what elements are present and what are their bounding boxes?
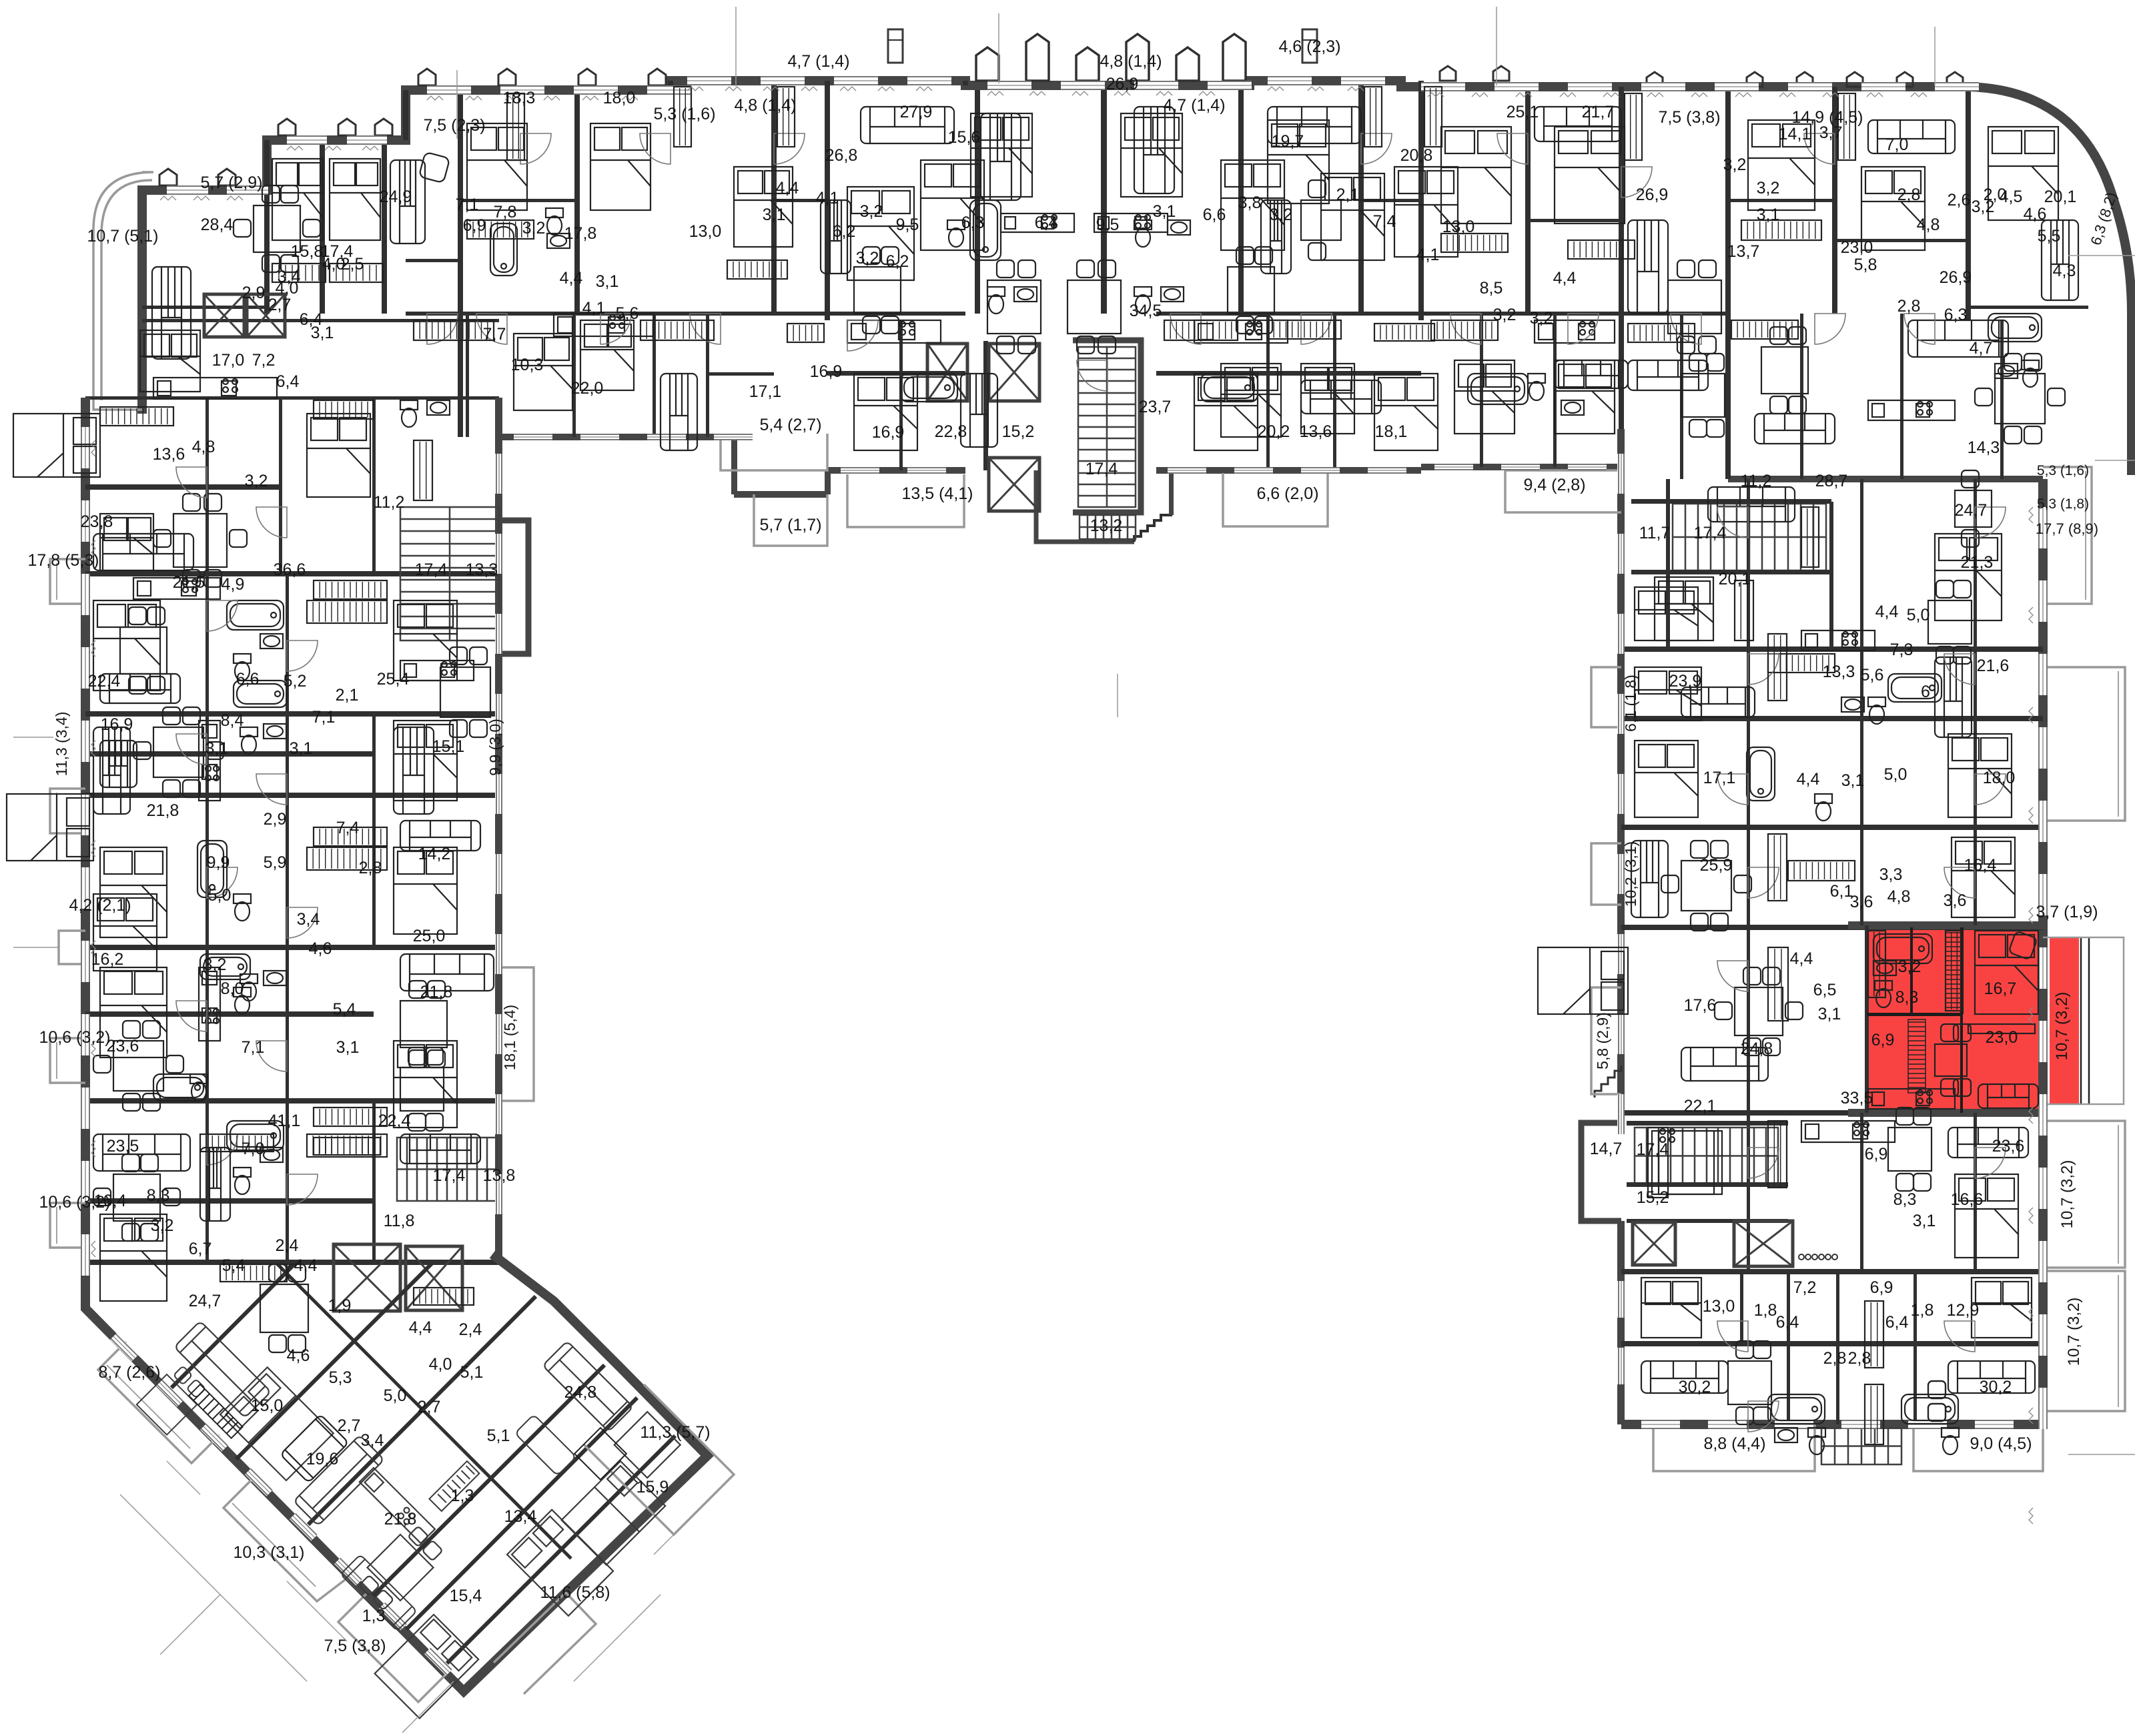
svg-text:5,0: 5,0: [1884, 765, 1907, 784]
svg-text:3,4: 3,4: [297, 910, 320, 929]
svg-text:7,5 (3,8): 7,5 (3,8): [324, 1637, 386, 1655]
svg-text:15,4: 15,4: [450, 1587, 482, 1605]
svg-text:17,4: 17,4: [433, 1166, 466, 1185]
svg-text:10,7 (3,2): 10,7 (3,2): [2053, 992, 2071, 1061]
svg-text:6,4: 6,4: [1776, 1313, 1799, 1332]
svg-text:27,9: 27,9: [900, 103, 933, 121]
svg-text:5,7 (2,9): 5,7 (2,9): [200, 173, 262, 192]
svg-text:6,3: 6,3: [961, 213, 985, 232]
svg-text:17,7 (8,9): 17,7 (8,9): [2036, 520, 2098, 537]
svg-text:2,4: 2,4: [276, 1236, 299, 1255]
svg-text:4,7 (1,4): 4,7 (1,4): [787, 52, 849, 71]
svg-text:2,8: 2,8: [359, 859, 382, 877]
svg-text:5,0: 5,0: [384, 1386, 407, 1405]
svg-text:3,6: 3,6: [1944, 891, 1967, 910]
svg-text:6,9: 6,9: [1870, 1278, 1893, 1297]
svg-text:9,5: 9,5: [896, 215, 919, 234]
svg-text:21,8: 21,8: [147, 801, 179, 820]
svg-text:22,4: 22,4: [88, 672, 121, 691]
svg-text:10,3: 10,3: [511, 356, 544, 374]
svg-text:5,6: 5,6: [1861, 666, 1884, 685]
svg-text:4,4: 4,4: [409, 1318, 432, 1337]
svg-text:13,3: 13,3: [466, 560, 498, 579]
svg-text:4,6: 4,6: [287, 1346, 310, 1365]
svg-text:19,7: 19,7: [1272, 132, 1304, 151]
svg-text:4,0: 4,0: [276, 279, 299, 298]
svg-text:10,3 (3,1): 10,3 (3,1): [233, 1543, 304, 1562]
svg-text:15,2: 15,2: [1002, 422, 1035, 441]
svg-text:6,4: 6,4: [1885, 1313, 1909, 1332]
svg-text:17,4: 17,4: [1086, 460, 1118, 478]
svg-text:4,1: 4,1: [1416, 246, 1440, 264]
svg-text:17,8: 17,8: [564, 224, 597, 243]
svg-text:24,8: 24,8: [564, 1383, 597, 1402]
svg-text:3,2: 3,2: [1723, 155, 1747, 174]
svg-text:4,4: 4,4: [1875, 602, 1899, 621]
svg-text:5,3 (1,6): 5,3 (1,6): [2037, 463, 2089, 478]
svg-text:7,7: 7,7: [483, 325, 506, 344]
svg-text:13,0: 13,0: [689, 222, 722, 241]
svg-text:23,0: 23,0: [1986, 1028, 2018, 1047]
svg-text:4,3: 4,3: [2053, 262, 2076, 280]
svg-text:4,4: 4,4: [1790, 949, 1813, 968]
svg-text:16,6: 16,6: [1951, 1190, 1984, 1209]
svg-text:6,7: 6,7: [189, 1240, 212, 1258]
svg-text:1,3: 1,3: [451, 1486, 474, 1505]
svg-text:17,1: 17,1: [749, 382, 782, 401]
svg-text:11,6 (5,8): 11,6 (5,8): [540, 1583, 610, 1602]
svg-text:3,1: 3,1: [290, 739, 313, 758]
svg-text:18,0: 18,0: [603, 89, 636, 107]
svg-text:10,7 (3,2): 10,7 (3,2): [2065, 1298, 2083, 1366]
svg-text:6,6: 6,6: [236, 670, 260, 689]
svg-text:4,4: 4,4: [560, 269, 583, 288]
svg-text:2,7: 2,7: [418, 1398, 441, 1416]
svg-text:4,4: 4,4: [1797, 770, 1820, 789]
svg-text:7,8: 7,8: [494, 203, 517, 222]
svg-text:7,1: 7,1: [312, 708, 336, 727]
svg-text:5,3 (1,8): 5,3 (1,8): [2037, 496, 2089, 512]
svg-text:18,1 (5,4): 18,1 (5,4): [501, 1005, 518, 1070]
svg-text:6,2: 6,2: [833, 222, 856, 241]
svg-text:3,6: 3,6: [1850, 893, 1873, 911]
svg-text:2,8: 2,8: [1897, 297, 1921, 316]
svg-text:3,1: 3,1: [596, 272, 619, 291]
svg-text:4,8: 4,8: [192, 438, 216, 456]
svg-text:34,5: 34,5: [1130, 302, 1162, 320]
svg-text:17,0: 17,0: [212, 351, 245, 370]
svg-text:11,8: 11,8: [384, 1212, 415, 1230]
svg-text:26,9: 26,9: [1106, 75, 1139, 93]
svg-text:3,1: 3,1: [1153, 202, 1176, 221]
svg-text:4,4: 4,4: [776, 179, 799, 197]
svg-text:17,6: 17,6: [1684, 996, 1717, 1015]
svg-text:3,2: 3,2: [245, 472, 268, 490]
svg-text:11,7: 11,7: [1639, 524, 1671, 542]
svg-text:24,8: 24,8: [1741, 1039, 1773, 1058]
svg-text:5,4: 5,4: [222, 1256, 246, 1275]
svg-text:2,5: 2,5: [341, 255, 364, 274]
svg-text:23,6: 23,6: [1992, 1137, 2025, 1156]
svg-text:10,2 (3,1): 10,2 (3,1): [1622, 841, 1639, 907]
svg-text:5,0: 5,0: [1907, 606, 1930, 624]
svg-text:5,1: 5,1: [460, 1363, 484, 1382]
svg-text:5,3: 5,3: [329, 1368, 352, 1387]
svg-text:24,9: 24,9: [380, 187, 412, 206]
svg-text:11,3 (5,7): 11,3 (5,7): [640, 1423, 710, 1442]
svg-text:4,4: 4,4: [294, 1256, 318, 1275]
svg-text:5,2: 5,2: [284, 672, 307, 691]
svg-text:2,9: 2,9: [242, 284, 266, 302]
svg-text:3,1: 3,1: [336, 1038, 360, 1057]
svg-text:3,7 (1,9): 3,7 (1,9): [2036, 903, 2098, 921]
svg-text:18,0: 18,0: [1983, 769, 2016, 787]
svg-text:8,3: 8,3: [1895, 988, 1919, 1007]
svg-text:8,3: 8,3: [147, 1186, 170, 1205]
svg-text:23,5: 23,5: [107, 1137, 139, 1156]
svg-text:3,2: 3,2: [1757, 179, 1780, 197]
svg-text:8,5: 8,5: [1480, 279, 1503, 298]
svg-text:18,1: 18,1: [1375, 422, 1408, 441]
svg-text:17,4: 17,4: [1637, 1140, 1669, 1159]
svg-text:2,1: 2,1: [1336, 185, 1360, 204]
svg-text:16,7: 16,7: [1984, 979, 2017, 998]
svg-text:22,0: 22,0: [571, 379, 604, 398]
svg-text:26,9: 26,9: [1940, 268, 1972, 287]
svg-text:4,6: 4,6: [2024, 205, 2047, 224]
svg-text:3,4: 3,4: [361, 1431, 384, 1450]
svg-text:3,1: 3,1: [1841, 771, 1865, 790]
svg-text:9,4 (2,8): 9,4 (2,8): [1523, 476, 1585, 494]
svg-text:4,7 (1,4): 4,7 (1,4): [1163, 96, 1225, 115]
svg-text:16,9: 16,9: [810, 362, 843, 381]
svg-text:6,9: 6,9: [463, 216, 486, 235]
svg-text:4,0: 4,0: [429, 1355, 452, 1374]
svg-text:22,8: 22,8: [935, 422, 967, 441]
svg-text:7,2: 7,2: [252, 351, 276, 370]
svg-text:41,1: 41,1: [268, 1112, 301, 1130]
svg-text:12,9: 12,9: [1947, 1301, 1980, 1320]
svg-text:33,5: 33,5: [1841, 1089, 1873, 1108]
svg-text:6,3: 6,3: [1944, 306, 1968, 324]
svg-text:9,0 (4,5): 9,0 (4,5): [1970, 1434, 2032, 1453]
svg-text:4,6: 4,6: [309, 939, 332, 958]
svg-text:15,8: 15,8: [291, 242, 324, 261]
svg-text:3,2: 3,2: [1493, 306, 1517, 324]
svg-text:20,1: 20,1: [1719, 570, 1751, 588]
svg-text:1,9: 1,9: [328, 1296, 352, 1315]
svg-text:9,5: 9,5: [1096, 215, 1120, 234]
svg-text:7,4: 7,4: [336, 819, 360, 837]
svg-text:13,2: 13,2: [1090, 516, 1123, 535]
svg-text:2,8: 2,8: [1897, 185, 1921, 204]
svg-text:3,2: 3,2: [203, 955, 227, 974]
svg-text:22,4: 22,4: [378, 1112, 411, 1130]
svg-text:10,7 (5,1): 10,7 (5,1): [87, 227, 158, 246]
svg-text:30,2: 30,2: [1679, 1378, 1711, 1396]
svg-text:1,8: 1,8: [1754, 1301, 1777, 1320]
svg-text:2,8: 2,8: [1848, 1349, 1871, 1368]
svg-text:21,7: 21,7: [1582, 103, 1615, 121]
svg-text:4,6 (2,3): 4,6 (2,3): [1278, 37, 1340, 56]
svg-text:7,2: 7,2: [1793, 1278, 1817, 1297]
svg-text:5,6: 5,6: [616, 304, 639, 323]
svg-text:4,1: 4,1: [582, 299, 606, 318]
svg-text:24,7: 24,7: [1955, 501, 1988, 520]
svg-text:9,9: 9,9: [207, 853, 230, 872]
svg-text:2,1: 2,1: [336, 686, 359, 705]
svg-text:5,9: 5,9: [264, 853, 287, 872]
svg-text:5,3 (1,6): 5,3 (1,6): [653, 105, 715, 123]
svg-text:3,7: 3,7: [1819, 123, 1843, 142]
svg-text:23,7: 23,7: [1139, 398, 1172, 416]
svg-text:16,9: 16,9: [101, 715, 133, 734]
svg-text:3,3: 3,3: [1879, 865, 1903, 884]
svg-text:3,2: 3,2: [151, 1216, 174, 1235]
svg-text:17,1: 17,1: [1703, 769, 1736, 787]
svg-text:4,8 (1,4): 4,8 (1,4): [1100, 52, 1162, 71]
svg-text:3,2: 3,2: [860, 202, 883, 221]
svg-text:2,6: 2,6: [1948, 191, 1971, 209]
svg-text:26,8: 26,8: [825, 146, 858, 165]
svg-text:3,8: 3,8: [1238, 193, 1262, 212]
svg-text:5,0: 5,0: [208, 886, 232, 905]
svg-text:7,1: 7,1: [456, 195, 479, 214]
svg-text:6,5: 6,5: [1813, 981, 1837, 999]
svg-text:36,6: 36,6: [274, 560, 306, 579]
svg-text:7,0: 7,0: [242, 1140, 265, 1158]
svg-text:1,3: 1,3: [362, 1607, 386, 1625]
svg-text:10,6 (3,2): 10,6 (3,2): [39, 1028, 110, 1047]
svg-text:13,6: 13,6: [153, 445, 185, 464]
svg-text:13,8: 13,8: [483, 1166, 516, 1185]
svg-text:4,8 (1,4): 4,8 (1,4): [734, 96, 796, 115]
svg-text:15,0: 15,0: [251, 1396, 284, 1415]
svg-text:30,2: 30,2: [1980, 1378, 2012, 1396]
svg-text:13,5 (4,1): 13,5 (4,1): [901, 484, 973, 503]
svg-text:14,7: 14,7: [1590, 1140, 1623, 1158]
svg-text:8,4: 8,4: [221, 711, 244, 730]
svg-text:4,7: 4,7: [1970, 339, 1993, 358]
svg-text:4,8: 4,8: [1887, 887, 1911, 906]
svg-text:14,3: 14,3: [1968, 438, 2000, 457]
svg-text:8,3: 8,3: [1893, 1190, 1917, 1209]
svg-text:18,3: 18,3: [503, 89, 536, 107]
svg-text:17,4: 17,4: [415, 560, 448, 579]
svg-text:6: 6: [1921, 683, 1930, 701]
svg-text:17,4: 17,4: [1694, 524, 1727, 542]
svg-text:22,1: 22,1: [1684, 1097, 1717, 1116]
svg-text:5,7 (1,7): 5,7 (1,7): [759, 516, 821, 534]
svg-text:1,8: 1,8: [1911, 1301, 1934, 1320]
svg-text:17,8 (5,3): 17,8 (5,3): [27, 551, 99, 570]
svg-text:13,4: 13,4: [504, 1507, 537, 1526]
svg-text:4,4: 4,4: [1553, 269, 1577, 288]
svg-text:2,4: 2,4: [459, 1320, 482, 1339]
svg-text:5,8: 5,8: [1854, 256, 1877, 274]
svg-text:3,1: 3,1: [205, 739, 229, 758]
svg-text:10,7 (3,2): 10,7 (3,2): [2058, 1160, 2076, 1229]
svg-text:13,0: 13,0: [1442, 218, 1475, 236]
svg-text:25,9: 25,9: [1700, 856, 1733, 875]
svg-text:11,2: 11,2: [374, 493, 405, 512]
svg-text:5,4 (2,7): 5,4 (2,7): [759, 416, 821, 434]
svg-text:20,8: 20,8: [1400, 146, 1433, 165]
svg-text:16,4: 16,4: [1964, 856, 1997, 875]
svg-text:2,7: 2,7: [338, 1416, 361, 1435]
svg-text:23,0: 23,0: [1841, 238, 1873, 257]
svg-text:15,1: 15,1: [432, 737, 465, 756]
svg-text:13,7: 13,7: [1727, 242, 1760, 261]
svg-text:3,2: 3,2: [522, 219, 546, 238]
svg-text:3,2: 3,2: [1270, 205, 1293, 224]
svg-text:8,0: 8,0: [221, 979, 244, 998]
svg-text:28,4: 28,4: [201, 215, 234, 234]
svg-text:7,4: 7,4: [1373, 212, 1396, 231]
svg-text:3,1: 3,1: [763, 205, 786, 224]
svg-text:3,1: 3,1: [1818, 1005, 1841, 1023]
svg-text:7,5 (2,3): 7,5 (2,3): [423, 116, 485, 135]
svg-text:15,6: 15,6: [948, 128, 981, 147]
svg-text:21,6: 21,6: [1977, 657, 2010, 675]
svg-text:8,7 (2,6): 8,7 (2,6): [98, 1363, 160, 1382]
svg-text:2,8: 2,8: [1823, 1349, 1847, 1368]
svg-text:3,2: 3,2: [1530, 309, 1553, 328]
svg-text:20,1: 20,1: [2044, 187, 2077, 206]
svg-text:7,0: 7,0: [1885, 135, 1909, 154]
svg-text:13,0: 13,0: [1703, 1297, 1735, 1316]
svg-text:14,2: 14,2: [418, 845, 451, 863]
svg-text:4,8: 4,8: [1917, 215, 1940, 234]
svg-text:3,2: 3,2: [1898, 957, 1922, 976]
svg-text:6,9: 6,9: [1865, 1145, 1888, 1164]
svg-text:15,2: 15,2: [1637, 1188, 1669, 1207]
svg-text:5,1: 5,1: [487, 1426, 510, 1445]
svg-text:13,3: 13,3: [1823, 663, 1855, 681]
svg-text:5,5: 5,5: [2038, 227, 2061, 246]
svg-text:21,3: 21,3: [1961, 553, 1994, 572]
svg-text:3,1: 3,1: [1913, 1212, 1936, 1230]
svg-text:7,3: 7,3: [1890, 640, 1913, 659]
svg-text:9,9 (3,0): 9,9 (3,0): [486, 719, 504, 776]
svg-text:14,1: 14,1: [1779, 125, 1811, 143]
svg-text:6,4: 6,4: [1035, 213, 1058, 232]
svg-text:2,9: 2,9: [264, 810, 287, 829]
svg-text:6,9: 6,9: [1871, 1031, 1895, 1049]
svg-text:16,9: 16,9: [872, 423, 905, 442]
svg-text:6,4: 6,4: [276, 372, 300, 391]
svg-text:7,5 (3,8): 7,5 (3,8): [1658, 108, 1720, 127]
svg-text:24,7: 24,7: [189, 1292, 222, 1310]
svg-text:26,9: 26,9: [1636, 185, 1669, 204]
svg-text:28,7: 28,7: [1815, 472, 1848, 490]
svg-text:19,6: 19,6: [306, 1450, 339, 1468]
svg-text:25,4: 25,4: [377, 670, 410, 689]
svg-text:5,4: 5,4: [333, 1000, 356, 1019]
svg-text:15,9: 15,9: [636, 1478, 669, 1496]
svg-text:11,2: 11,2: [1741, 472, 1772, 490]
svg-text:21,8: 21,8: [384, 1510, 417, 1529]
svg-text:4,9: 4,9: [222, 575, 245, 594]
svg-text:25,0: 25,0: [413, 927, 446, 945]
svg-text:7,1: 7,1: [242, 1038, 265, 1057]
svg-text:6,6: 6,6: [1203, 205, 1226, 224]
svg-text:25,1: 25,1: [1507, 103, 1539, 121]
svg-text:11,3 (3,4): 11,3 (3,4): [53, 712, 70, 777]
svg-text:23,9: 23,9: [1669, 672, 1702, 691]
svg-text:3,2: 3,2: [856, 249, 879, 268]
svg-text:6,1 (1,8): 6,1 (1,8): [1622, 675, 1639, 732]
svg-text:4,2 (2,1): 4,2 (2,1): [69, 896, 131, 915]
svg-text:3,1: 3,1: [1757, 205, 1780, 224]
svg-text:2,0: 2,0: [1984, 185, 2007, 204]
svg-text:6,6 (2,0): 6,6 (2,0): [1256, 484, 1318, 503]
svg-text:4,1: 4,1: [816, 189, 839, 207]
svg-text:13,6: 13,6: [1300, 422, 1332, 441]
svg-text:6,2: 6,2: [886, 252, 909, 271]
svg-text:23,8: 23,8: [81, 512, 113, 531]
svg-text:8,8 (4,4): 8,8 (4,4): [1703, 1434, 1765, 1453]
svg-text:2,7: 2,7: [268, 296, 292, 314]
svg-text:21,5: 21,5: [173, 573, 205, 592]
svg-text:20,2: 20,2: [1258, 422, 1290, 441]
svg-text:16,2: 16,2: [91, 950, 124, 969]
svg-text:23,6: 23,6: [107, 1037, 139, 1055]
svg-text:5,8 (2,9): 5,8 (2,9): [1594, 1012, 1611, 1069]
svg-text:16,4: 16,4: [94, 1192, 127, 1210]
svg-text:21,8: 21,8: [420, 983, 453, 1001]
svg-text:3,1: 3,1: [311, 324, 334, 342]
